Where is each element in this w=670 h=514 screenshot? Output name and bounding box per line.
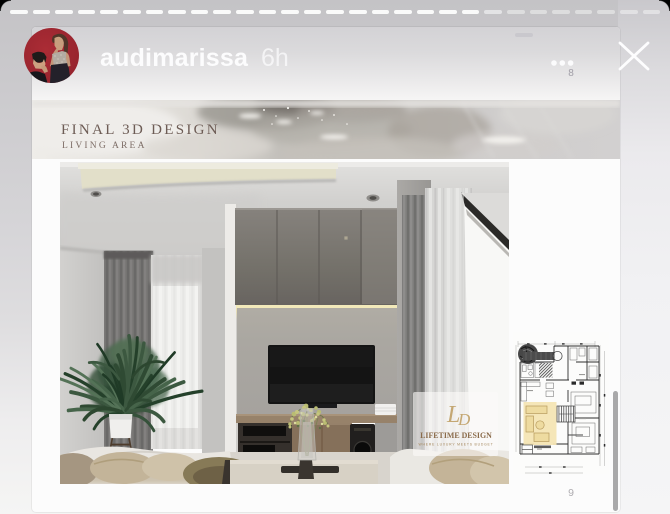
svg-text:LIFETIME DESIGN: LIFETIME DESIGN	[420, 431, 492, 440]
svg-text:D: D	[457, 410, 471, 429]
svg-text:WHERE LUXURY MEETS BUDGET: WHERE LUXURY MEETS BUDGET	[419, 443, 494, 447]
